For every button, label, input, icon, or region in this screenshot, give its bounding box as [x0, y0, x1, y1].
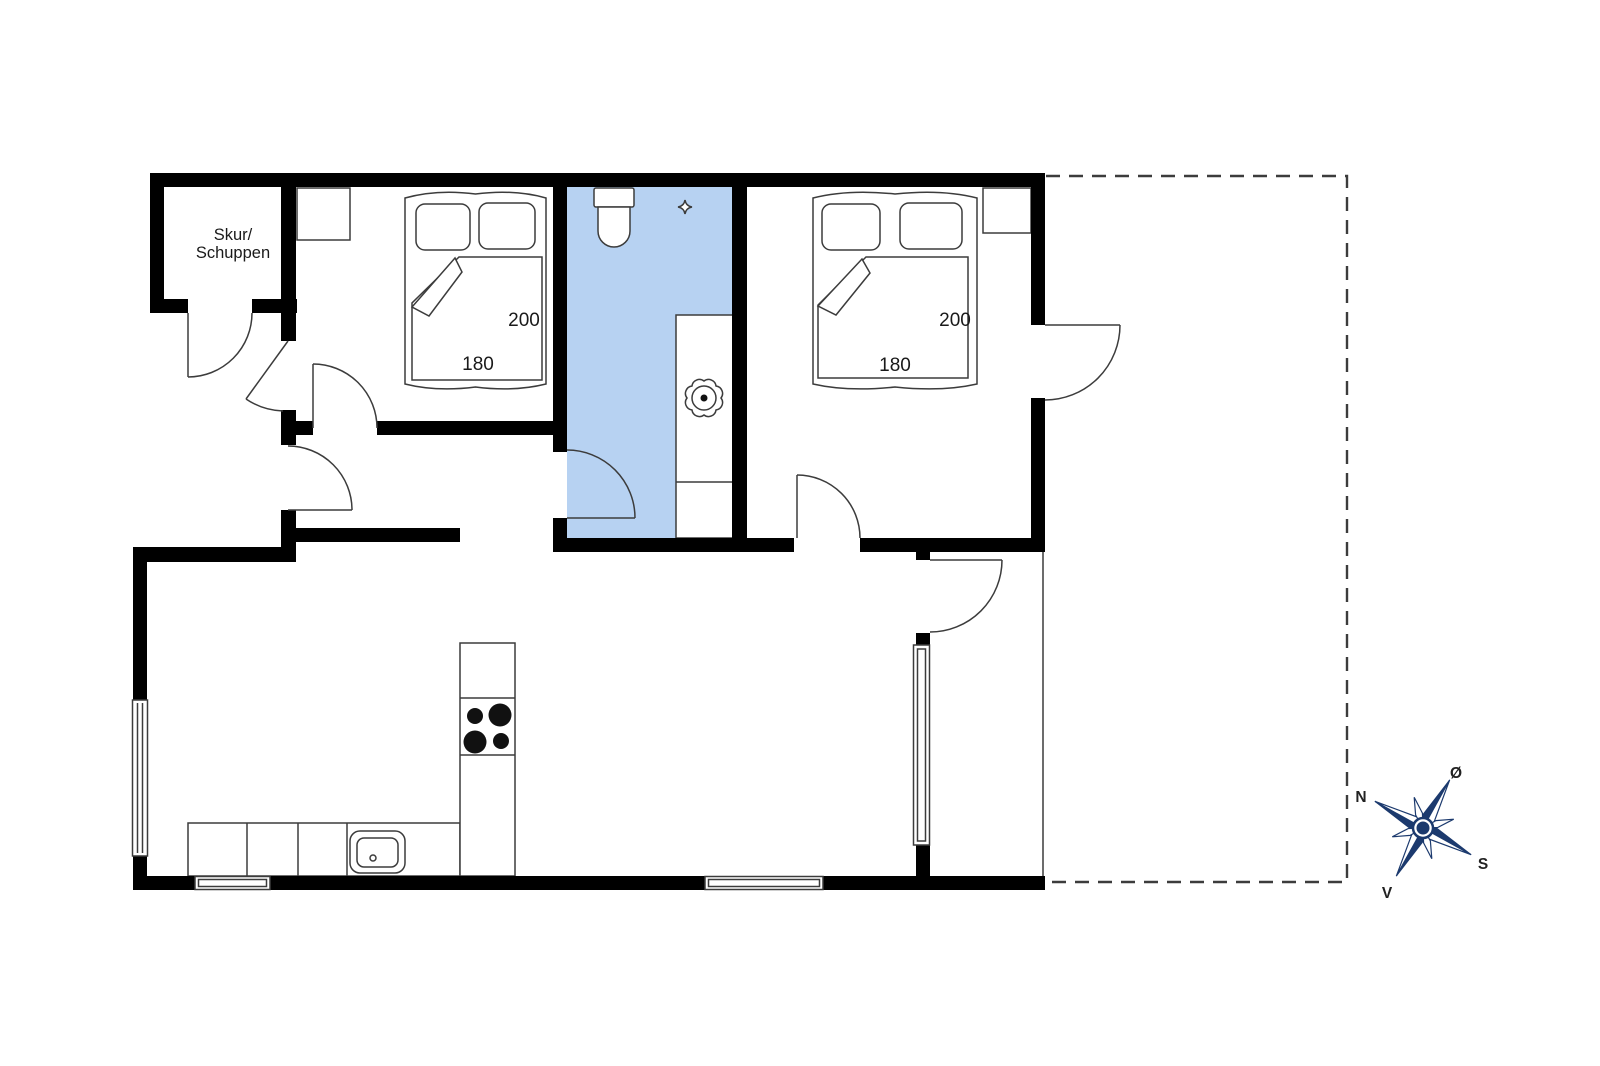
bathroom-vanity	[676, 315, 733, 538]
column-body	[460, 643, 515, 876]
wall-porch-block-mid	[916, 633, 930, 645]
wall-bedroom1-south-stub	[296, 421, 313, 435]
wall-right-upper	[1031, 173, 1045, 325]
bed1-pillow-left	[416, 204, 470, 250]
terrace-outline	[1046, 176, 1347, 882]
bedroom1-closet	[297, 188, 350, 240]
shed-label-line1: Skur/	[214, 226, 253, 244]
compass-west-label: V	[1382, 885, 1393, 902]
floor-plan: Skur/ Schuppen 200 180 200 180 N Ø S V	[0, 0, 1600, 1066]
compass-hub-dot	[1417, 822, 1429, 834]
bedroom1-length-label: 200	[508, 310, 540, 331]
bed2-pillow-left	[822, 204, 880, 250]
compass-rose: N Ø S V	[1348, 753, 1498, 903]
kitchen-sink-inner	[357, 838, 398, 867]
shed-label-line2: Schuppen	[196, 244, 270, 262]
bedroom2-closet	[983, 188, 1031, 233]
floor-plan-page: Skur/ Schuppen 200 180 200 180 N Ø S V	[0, 0, 1600, 1066]
wall-hall-south	[296, 528, 460, 542]
basin-drain	[701, 395, 708, 402]
wall-porch-block-top	[916, 538, 930, 560]
toilet-bowl	[598, 207, 630, 247]
wall-porch-block-bottom	[916, 845, 930, 876]
wall-top	[150, 173, 1045, 187]
door-bedroom1	[313, 364, 377, 428]
window-east-living	[914, 645, 930, 845]
burner-large-2	[464, 731, 487, 754]
burner-small-2	[493, 733, 509, 749]
wall-front-upper	[281, 187, 296, 341]
door-bedroom2-terrace	[1045, 325, 1120, 400]
compass-east-label: Ø	[1450, 765, 1462, 782]
vanity-counter	[676, 315, 733, 538]
wall-south-main-right	[860, 538, 1031, 552]
bed1-pillow-right	[479, 203, 535, 249]
kitchen-sink-drain	[370, 855, 376, 861]
wall-shed-south-left	[150, 299, 188, 313]
bed2-pillow-right	[900, 203, 962, 249]
compass-north-label: N	[1355, 789, 1366, 806]
door-living-porch	[930, 560, 1002, 632]
wall-bath-west-upper	[553, 187, 567, 452]
wall-south-main-left	[553, 538, 794, 552]
wall-right-lower	[1031, 398, 1045, 552]
burner-small-1	[467, 708, 483, 724]
kitchen-counter	[188, 823, 460, 876]
compass-south-label: S	[1478, 856, 1488, 873]
door-hallway	[288, 446, 352, 510]
wall-front-mid	[281, 410, 296, 445]
door-shed	[188, 313, 252, 377]
bedroom2-length-label: 200	[939, 310, 971, 331]
wall-shed-west	[150, 187, 164, 313]
burner-large-1	[489, 704, 512, 727]
kitchen-column	[460, 643, 515, 876]
door-entrance	[246, 341, 288, 411]
wall-bedroom1-south-main	[377, 421, 553, 435]
window-south-kitchen	[195, 877, 270, 890]
counter-run	[188, 823, 460, 876]
window-south-living	[705, 877, 823, 890]
toilet-tank	[594, 188, 634, 207]
wall-west-wing-south	[133, 547, 296, 562]
wall-left-upper	[133, 547, 147, 702]
window-west	[133, 700, 148, 856]
bedroom2-width-label: 180	[879, 355, 911, 376]
bedroom1-width-label: 180	[462, 354, 494, 375]
door-bedroom2	[797, 475, 860, 538]
toilet	[594, 188, 634, 247]
wall-bath-east	[732, 187, 747, 552]
